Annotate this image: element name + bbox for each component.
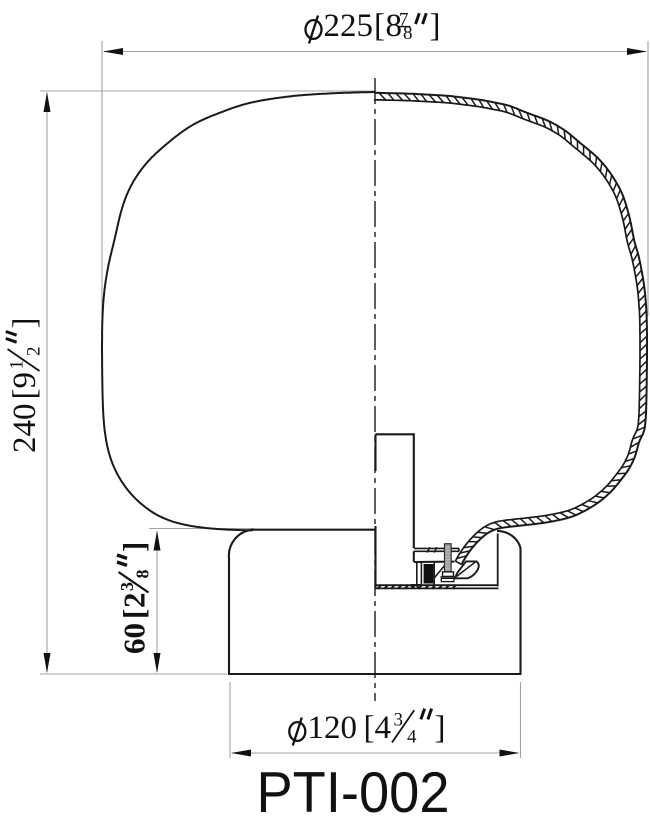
svg-text:[: [: [364, 710, 375, 746]
svg-text:PTI-002: PTI-002: [257, 761, 450, 825]
svg-text:8: 8: [133, 570, 153, 579]
svg-text:8: 8: [403, 23, 413, 44]
svg-text:2: 2: [24, 347, 45, 357]
svg-text:4: 4: [375, 710, 392, 746]
svg-text:4: 4: [407, 727, 417, 748]
svg-text:]: ]: [430, 8, 441, 44]
svg-text:2: 2: [117, 593, 152, 609]
svg-text:120: 120: [308, 710, 358, 746]
svg-text:[: [: [374, 8, 385, 44]
svg-text:240: 240: [7, 404, 43, 454]
svg-text:9: 9: [7, 372, 43, 389]
svg-text:]: ]: [117, 542, 152, 552]
svg-text:[: [: [7, 389, 43, 400]
svg-text:225: 225: [324, 8, 374, 44]
svg-text:]: ]: [7, 318, 43, 329]
svg-text:60: 60: [117, 623, 152, 654]
svg-text:[: [: [117, 609, 152, 619]
svg-text:]: ]: [435, 710, 446, 746]
